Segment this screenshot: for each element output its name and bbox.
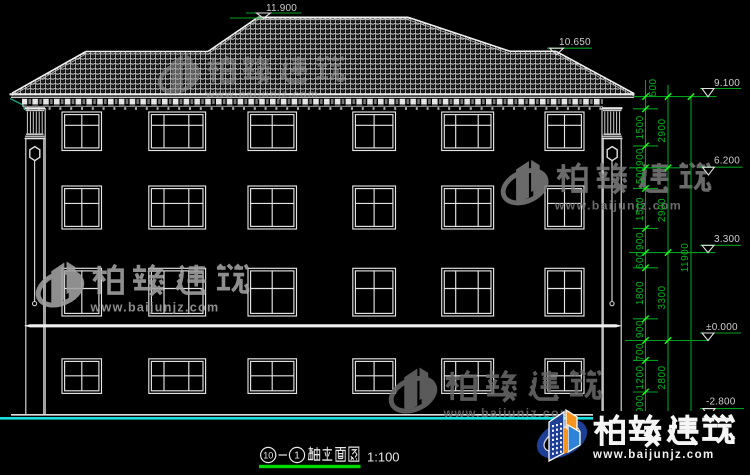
svg-text:11.900: 11.900 [266, 3, 297, 14]
svg-text:10: 10 [263, 450, 273, 460]
svg-text:1500: 1500 [635, 197, 646, 221]
svg-text:900: 900 [635, 148, 646, 166]
svg-text:900: 900 [635, 232, 646, 250]
svg-text:1: 1 [294, 451, 300, 462]
svg-text:500: 500 [648, 78, 659, 96]
svg-text:3.300: 3.300 [714, 234, 740, 245]
svg-text:6.200: 6.200 [714, 156, 740, 167]
svg-text:10.650: 10.650 [559, 37, 591, 48]
svg-text:±0.000: ±0.000 [706, 322, 738, 333]
svg-text:900: 900 [635, 320, 646, 338]
svg-text:9.100: 9.100 [714, 78, 740, 89]
svg-text:2900: 2900 [657, 118, 668, 142]
svg-text:1:100: 1:100 [367, 450, 400, 465]
svg-text:600: 600 [635, 251, 646, 269]
svg-text:2900: 2900 [657, 198, 668, 222]
svg-text:1200: 1200 [635, 365, 646, 389]
svg-text:11900: 11900 [680, 243, 691, 273]
svg-text:2800: 2800 [657, 365, 668, 389]
svg-text:900: 900 [635, 395, 646, 413]
svg-text:1500: 1500 [635, 115, 646, 139]
svg-text:-2.800: -2.800 [706, 397, 736, 408]
svg-text:www.baijunjz.com: www.baijunjz.com [592, 449, 715, 461]
svg-text:700: 700 [635, 343, 646, 361]
svg-text:1800: 1800 [635, 281, 646, 305]
svg-text:3300: 3300 [657, 285, 668, 309]
svg-text:500: 500 [635, 166, 646, 184]
